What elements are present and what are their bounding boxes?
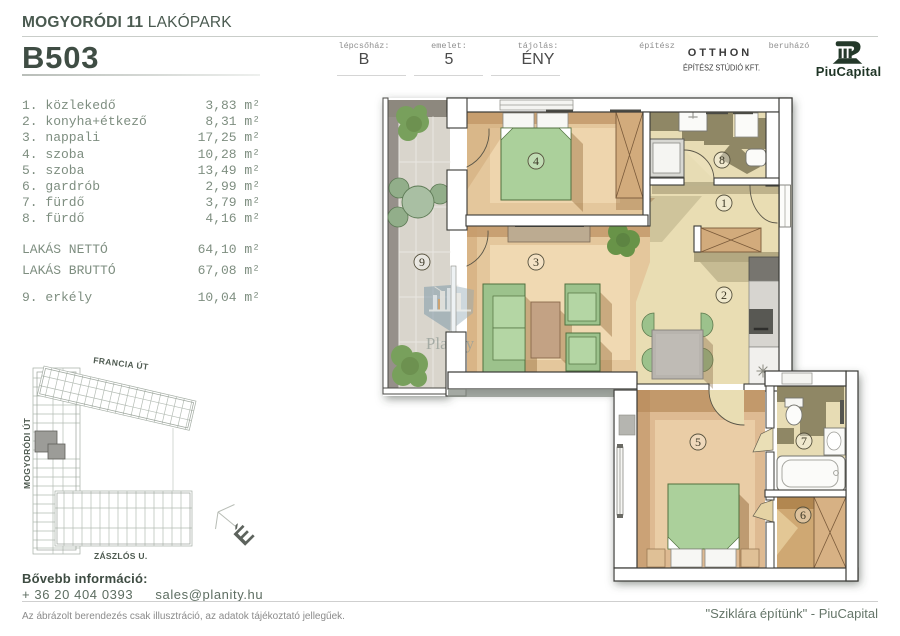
svg-text:9: 9 (419, 255, 425, 269)
svg-text:ZÁSZLÓS U.: ZÁSZLÓS U. (94, 550, 148, 561)
svg-text:3: 3 (533, 255, 539, 269)
svg-text:MOGYORÓDI ÚT: MOGYORÓDI ÚT (21, 417, 32, 489)
svg-text:1: 1 (721, 196, 727, 210)
svg-text:5: 5 (695, 435, 701, 449)
svg-text:2: 2 (721, 288, 727, 302)
svg-text:4: 4 (533, 154, 539, 168)
svg-text:PiuCapital: PiuCapital (816, 64, 882, 79)
svg-text:7: 7 (801, 434, 807, 448)
svg-text:6: 6 (800, 508, 806, 522)
svg-text:8: 8 (719, 153, 725, 167)
svg-text:FRANCIA ÚT: FRANCIA ÚT (93, 354, 150, 372)
